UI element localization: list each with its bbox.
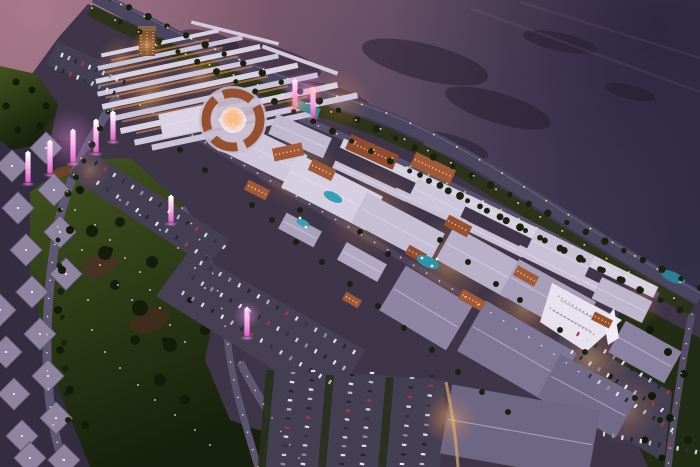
aerial-rendering-image: [0, 0, 700, 467]
scene-canvas: [0, 0, 700, 467]
parking-lot-south: [262, 368, 445, 467]
